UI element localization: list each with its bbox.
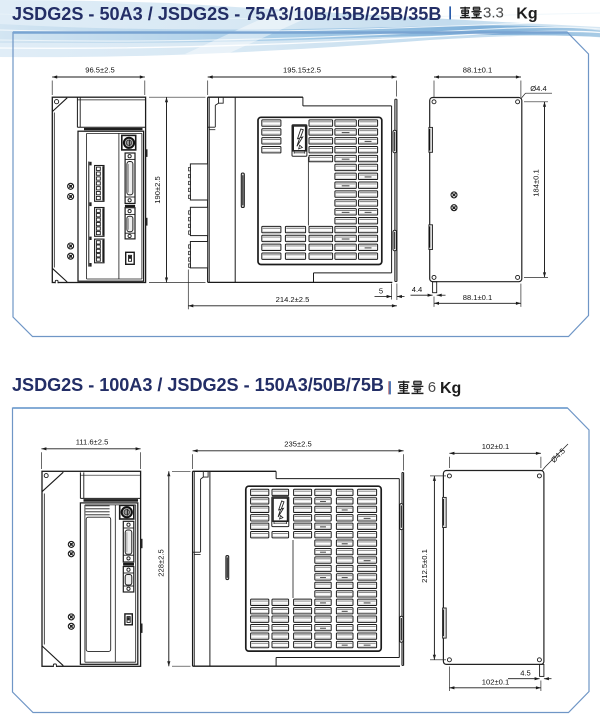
svg-text:4.4: 4.4 xyxy=(412,285,423,294)
svg-text:235±2.5: 235±2.5 xyxy=(284,439,311,448)
svg-text:Ø4.4: Ø4.4 xyxy=(530,84,546,93)
svg-text:228±2.5: 228±2.5 xyxy=(156,549,165,576)
svg-text:212.5±0.1: 212.5±0.1 xyxy=(420,549,429,583)
svg-text:102±0.1: 102±0.1 xyxy=(482,678,509,687)
svg-text:4.5: 4.5 xyxy=(520,669,531,678)
svg-text:96.5±2.5: 96.5±2.5 xyxy=(85,66,115,75)
svg-text:JSDG2S - 100A3 / JSDG2S - 150A: JSDG2S - 100A3 / JSDG2S - 150A3/50B/75B xyxy=(12,375,384,395)
svg-text:190±2.5: 190±2.5 xyxy=(153,176,162,203)
svg-text:102±0.1: 102±0.1 xyxy=(482,442,509,451)
svg-text:Kg: Kg xyxy=(516,5,537,22)
svg-text:184±0.1: 184±0.1 xyxy=(531,169,540,196)
svg-text:111.6±2.5: 111.6±2.5 xyxy=(76,437,109,446)
svg-text:5: 5 xyxy=(379,287,383,296)
svg-text:88.1±0.1: 88.1±0.1 xyxy=(463,66,493,75)
svg-text:214.2±2.5: 214.2±2.5 xyxy=(276,295,310,304)
svg-text:JSDG2S - 50A3 / JSDG2S - 75A3/: JSDG2S - 50A3 / JSDG2S - 75A3/10B/15B/25… xyxy=(12,4,441,24)
svg-text:195.15±2.5: 195.15±2.5 xyxy=(283,66,321,75)
svg-text:88.1±0.1: 88.1±0.1 xyxy=(463,293,493,302)
svg-text:3.3: 3.3 xyxy=(483,5,504,22)
svg-text:Kg: Kg xyxy=(440,380,461,397)
svg-text:6: 6 xyxy=(428,379,436,396)
